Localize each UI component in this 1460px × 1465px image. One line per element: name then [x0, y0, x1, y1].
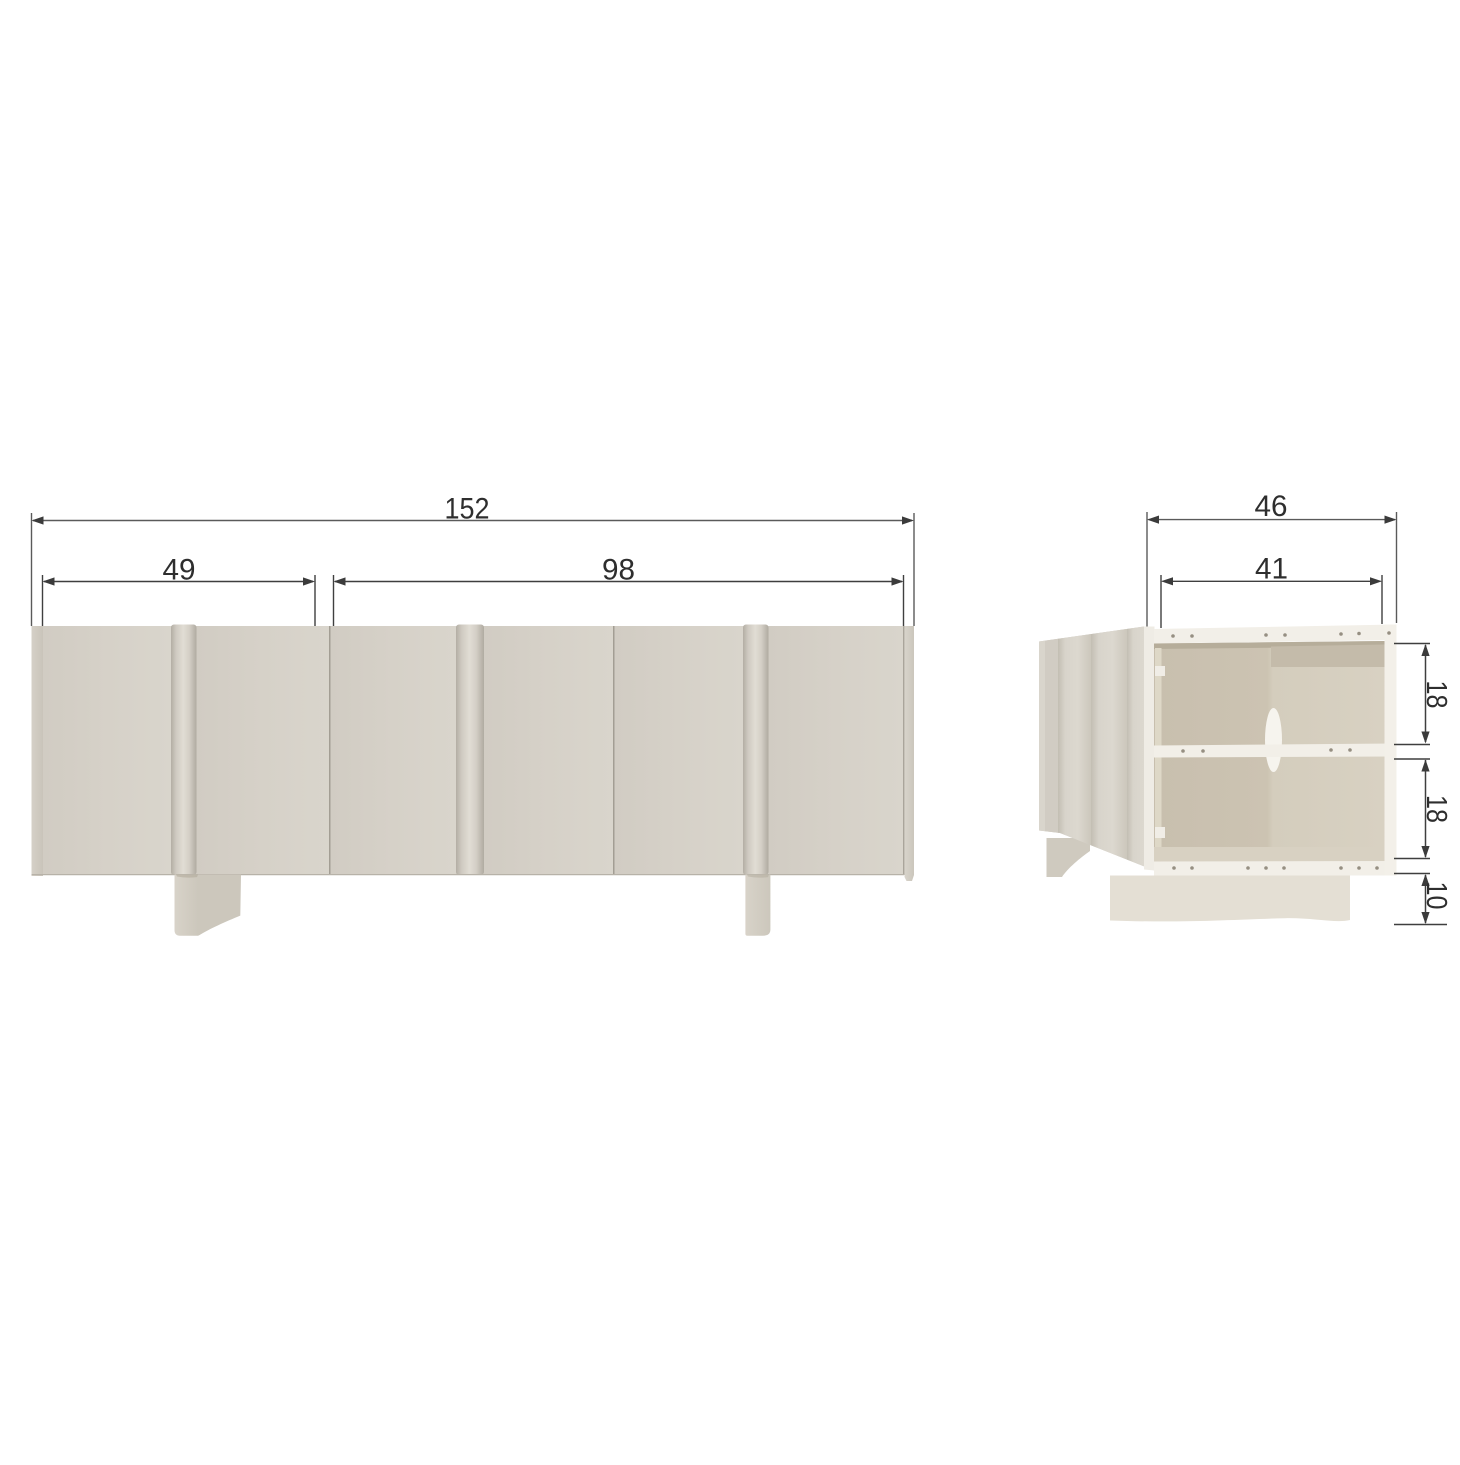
svg-text:46: 46 — [1255, 490, 1288, 523]
svg-text:41: 41 — [1255, 553, 1288, 586]
svg-text:18: 18 — [1420, 681, 1452, 709]
svg-text:152: 152 — [445, 493, 490, 526]
svg-text:98: 98 — [602, 554, 635, 587]
svg-text:18: 18 — [1420, 795, 1452, 823]
svg-text:49: 49 — [163, 554, 196, 587]
svg-text:10: 10 — [1420, 882, 1452, 910]
